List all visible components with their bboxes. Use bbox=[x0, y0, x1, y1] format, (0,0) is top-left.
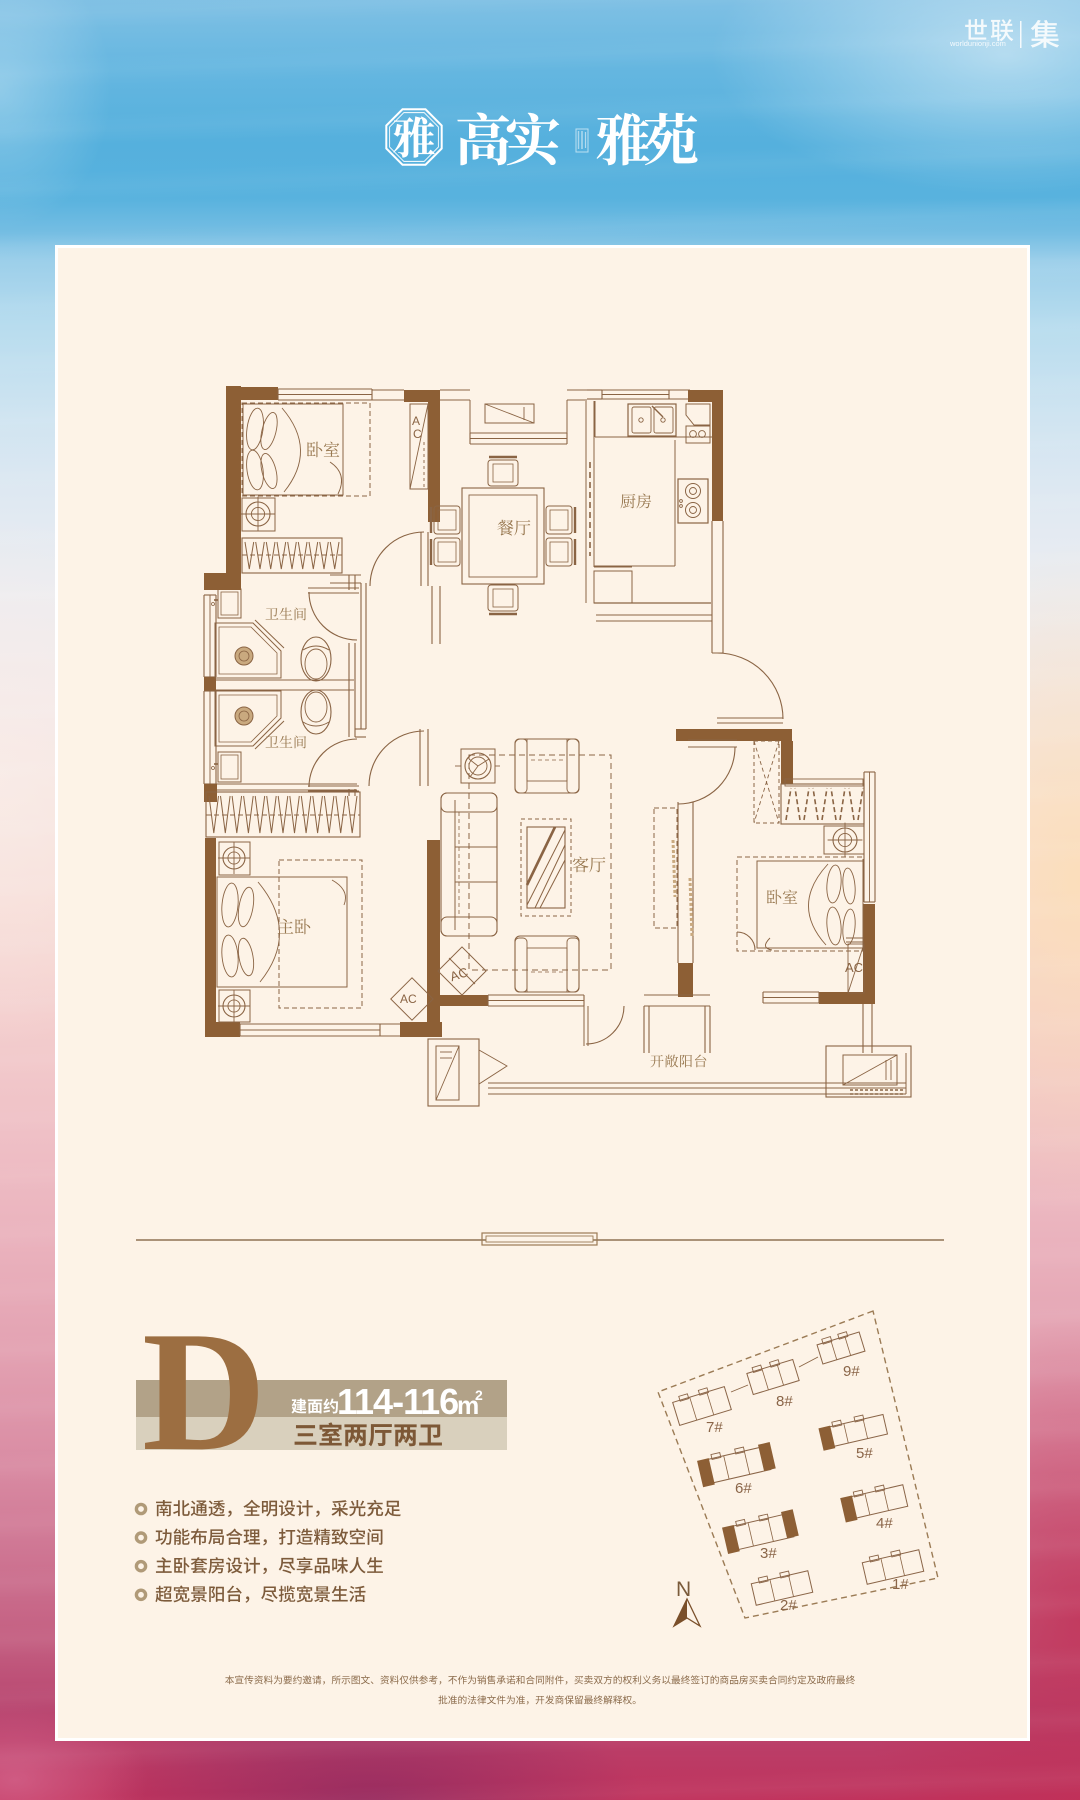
svg-text:AC: AC bbox=[400, 992, 417, 1006]
svg-text:7#: 7# bbox=[706, 1419, 723, 1436]
svg-text:5#: 5# bbox=[856, 1445, 873, 1462]
svg-text:AC: AC bbox=[845, 960, 863, 975]
svg-text:2#: 2# bbox=[780, 1597, 797, 1614]
svg-text:3#: 3# bbox=[760, 1545, 777, 1562]
svg-text:4#: 4# bbox=[876, 1515, 893, 1532]
svg-text:1#: 1# bbox=[892, 1576, 909, 1593]
svg-text:AC: AC bbox=[448, 964, 470, 984]
svg-text:8#: 8# bbox=[776, 1393, 793, 1410]
svg-text:N: N bbox=[676, 1578, 691, 1601]
svg-text:worldunionji.com: worldunionji.com bbox=[949, 39, 1006, 48]
svg-text:C: C bbox=[413, 427, 422, 441]
svg-text:A: A bbox=[412, 414, 420, 428]
svg-text:114-116: 114-116 bbox=[337, 1381, 458, 1422]
svg-text:2: 2 bbox=[475, 1387, 483, 1403]
svg-text:D: D bbox=[142, 1297, 266, 1487]
svg-text:9#: 9# bbox=[843, 1363, 860, 1380]
svg-text:6#: 6# bbox=[735, 1480, 752, 1497]
